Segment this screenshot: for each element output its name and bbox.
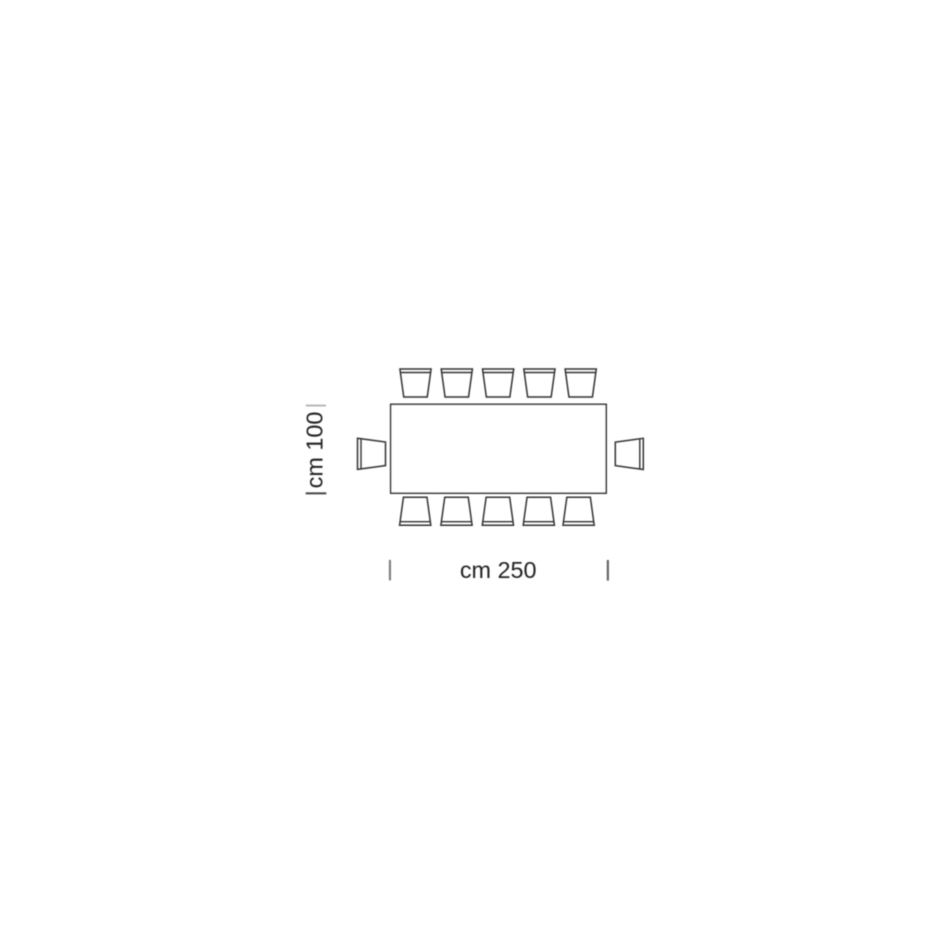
svg-text:cm 250: cm 250 [460, 557, 537, 583]
svg-text:cm 100: cm 100 [302, 412, 328, 489]
